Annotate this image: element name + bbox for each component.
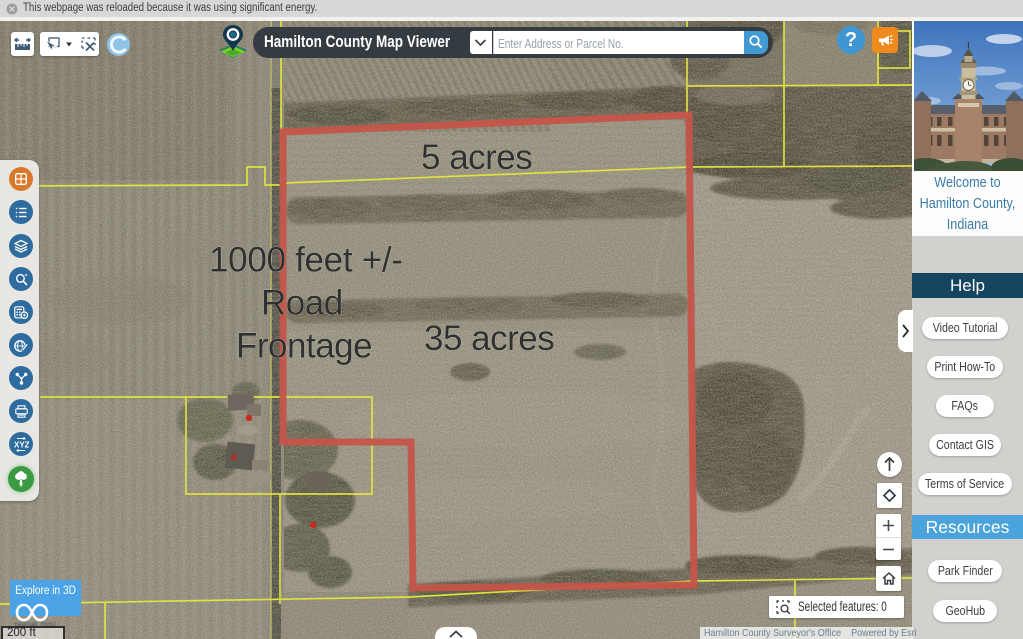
- svg-text:35 acres: 35 acres: [424, 319, 554, 358]
- svg-text:Frontage: Frontage: [236, 327, 372, 366]
- svg-text:Road: Road: [261, 284, 343, 323]
- svg-text:XYZ: XYZ: [14, 441, 29, 450]
- svg-text:5 acres: 5 acres: [421, 138, 532, 177]
- svg-text:1000 feet +/-: 1000 feet +/-: [209, 241, 403, 280]
